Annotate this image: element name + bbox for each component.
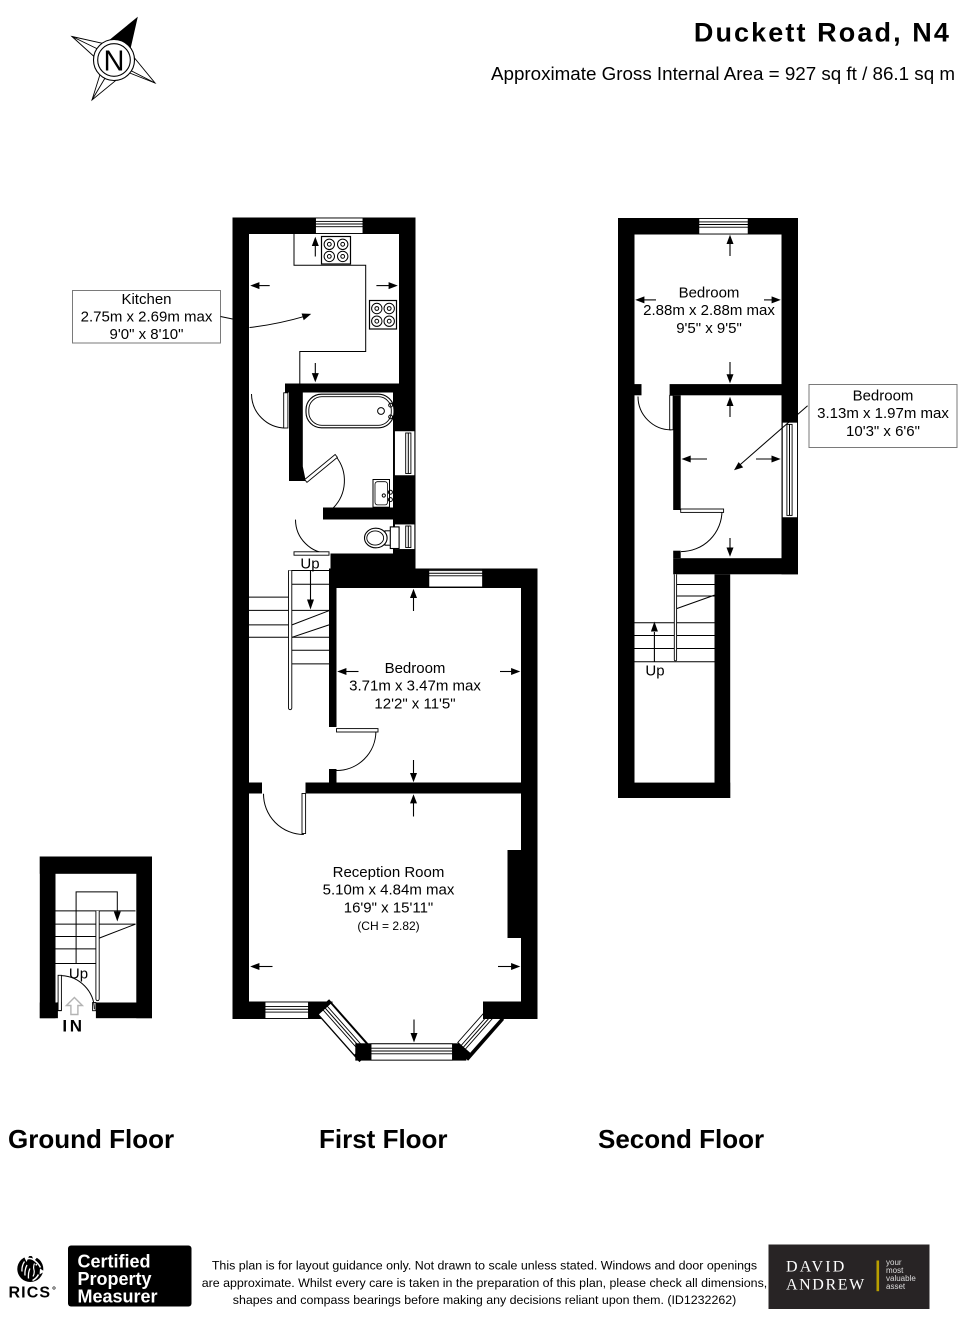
svg-text:IN: IN <box>62 1017 84 1036</box>
svg-text:Up: Up <box>69 965 88 982</box>
svg-text:Up: Up <box>645 662 664 679</box>
svg-text:2.75m x 2.69m max: 2.75m x 2.69m max <box>81 309 213 326</box>
svg-text:Bedroom: Bedroom <box>385 660 446 677</box>
svg-text:This plan is for layout guidan: This plan is for layout guidance only. N… <box>212 1259 757 1273</box>
svg-text:9'5" x 9'5": 9'5" x 9'5" <box>676 320 742 337</box>
svg-text:Duckett Road, N4: Duckett Road, N4 <box>694 18 951 48</box>
svg-text:10'3" x 6'6": 10'3" x 6'6" <box>846 423 920 440</box>
svg-text:5.10m x 4.84m max: 5.10m x 4.84m max <box>323 882 455 899</box>
svg-text:Approximate Gross Internal Are: Approximate Gross Internal Area = 927 sq… <box>491 63 955 84</box>
svg-text:First Floor: First Floor <box>319 1124 448 1154</box>
svg-text:9'0" x 8'10": 9'0" x 8'10" <box>110 326 184 343</box>
svg-text:ANDREW: ANDREW <box>786 1277 866 1294</box>
svg-text:Reception Room: Reception Room <box>333 864 445 881</box>
svg-text:asset: asset <box>886 1282 906 1291</box>
svg-text:shapes and compass bearings be: shapes and compass bearings before makin… <box>233 1293 737 1307</box>
svg-text:Up: Up <box>300 556 319 573</box>
svg-text:are approximate. Whilst every: are approximate. Whilst every care is ta… <box>202 1276 767 1290</box>
svg-text:Ground Floor: Ground Floor <box>8 1124 174 1154</box>
svg-text:Second Floor: Second Floor <box>598 1124 764 1154</box>
svg-text:Measurer: Measurer <box>78 1287 158 1307</box>
svg-text:Bedroom: Bedroom <box>679 285 740 302</box>
svg-text:3.13m x 1.97m max: 3.13m x 1.97m max <box>817 405 949 422</box>
svg-text:(CH = 2.82): (CH = 2.82) <box>357 919 419 933</box>
svg-text:12'2" x 11'5": 12'2" x 11'5" <box>374 695 455 712</box>
svg-text:DAVID: DAVID <box>786 1259 846 1276</box>
svg-text:16'9" x 15'11": 16'9" x 15'11" <box>344 899 434 916</box>
svg-text:3.71m x 3.47m max: 3.71m x 3.47m max <box>349 678 481 695</box>
svg-text:2.88m x 2.88m max: 2.88m x 2.88m max <box>643 302 775 319</box>
svg-text:Kitchen: Kitchen <box>121 291 171 308</box>
svg-text:RICS: RICS <box>9 1285 52 1302</box>
svg-text:N: N <box>104 46 125 78</box>
svg-text:Bedroom: Bedroom <box>853 388 914 405</box>
